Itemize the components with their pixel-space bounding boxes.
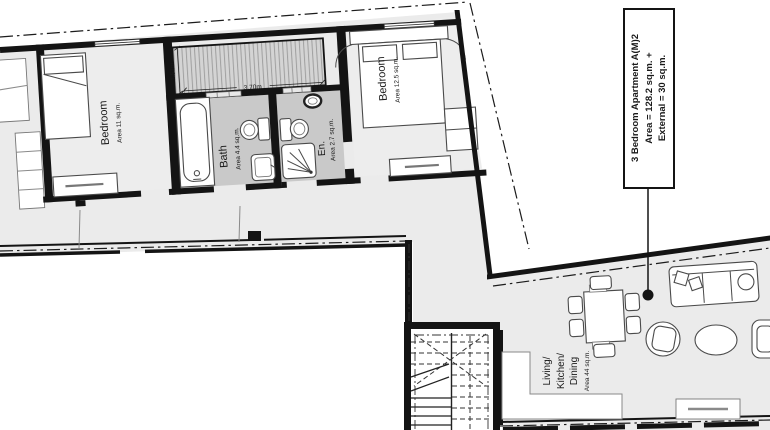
ensuite-basin [304,94,322,108]
bath-name: Bath [217,145,230,168]
armchair-right [752,320,770,358]
living-name-1: Living/ [542,356,553,385]
leader-dot [643,290,654,301]
bath-sink [251,153,276,180]
bedroom1-dresser [53,173,118,197]
apartment-label-area: Area = 128.2 sq.m. + [644,52,655,144]
bedroom2-dresser [389,156,451,177]
sofa [669,261,760,307]
living-area-label: Area 44 sq.m. [584,351,591,392]
neighbour-furniture [0,58,29,122]
bathtub [175,97,214,187]
floor-plan-drawing: Bedroom Area 11 sq.m. Bath Area 4.4 sq.m… [0,0,770,430]
stairwell [404,322,500,430]
neighbour-closet [15,132,45,209]
bedroom1-single-bed [40,53,90,140]
floor-plan-page: Bedroom Area 11 sq.m. Bath Area 4.4 sq.m… [0,0,770,430]
apartment-label-title: 3 Bedroom Apartment A(M)2 [630,34,641,162]
living-name-2: Kitchen/ [556,353,567,389]
sideboard-unit [676,399,740,419]
living-name-3: Dining [569,357,580,385]
ensuite-name: En. [316,141,328,157]
ensuite-shower [281,143,316,179]
armchair-left [646,322,680,356]
coffee-table [695,325,737,355]
dim-terrace-width: 3.70m [244,84,262,92]
dim-terrace-depth: 1.51m [169,62,177,80]
apartment-label-external: External = 30 sq.m. [657,55,668,141]
